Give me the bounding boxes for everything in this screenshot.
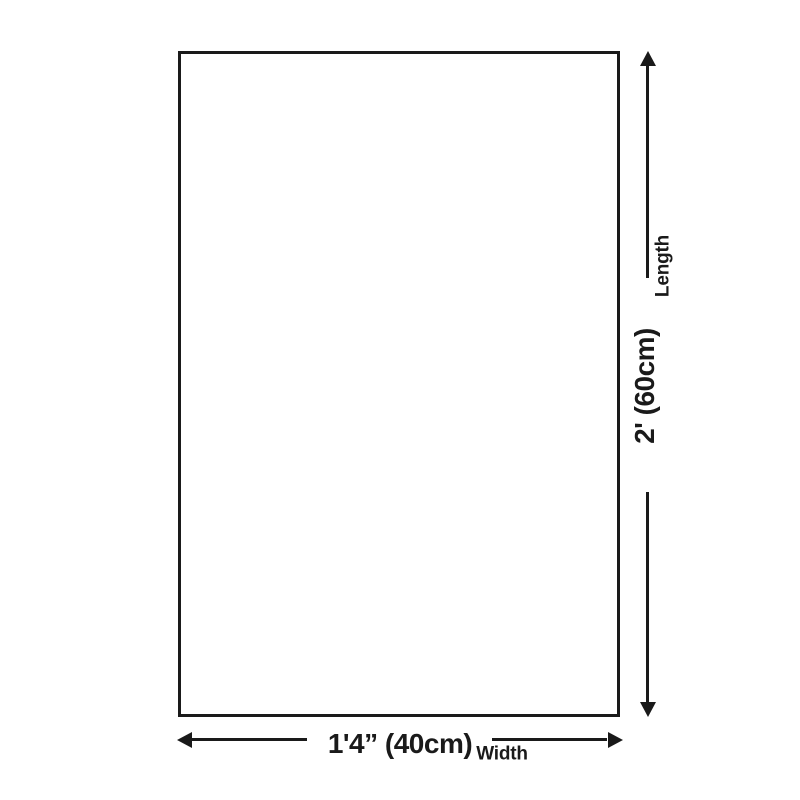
arrowhead-down-icon [640,702,656,717]
width-arrow-left-stem [190,738,307,741]
width-axis-label: Width [476,745,528,764]
arrowhead-right-icon [608,732,623,748]
length-arrow-bottom-stem [646,492,649,702]
product-outline-box [178,51,620,717]
width-value-label: 1'4” (40cm) [328,730,472,758]
length-axis-label: Length [654,235,673,297]
length-arrow-top-stem [646,64,649,278]
dimension-diagram: Length 2' (60cm) 1'4” (40cm) Width [0,0,800,800]
width-arrow-right-stem [492,738,607,741]
length-value-label: 2' (60cm) [631,328,659,444]
